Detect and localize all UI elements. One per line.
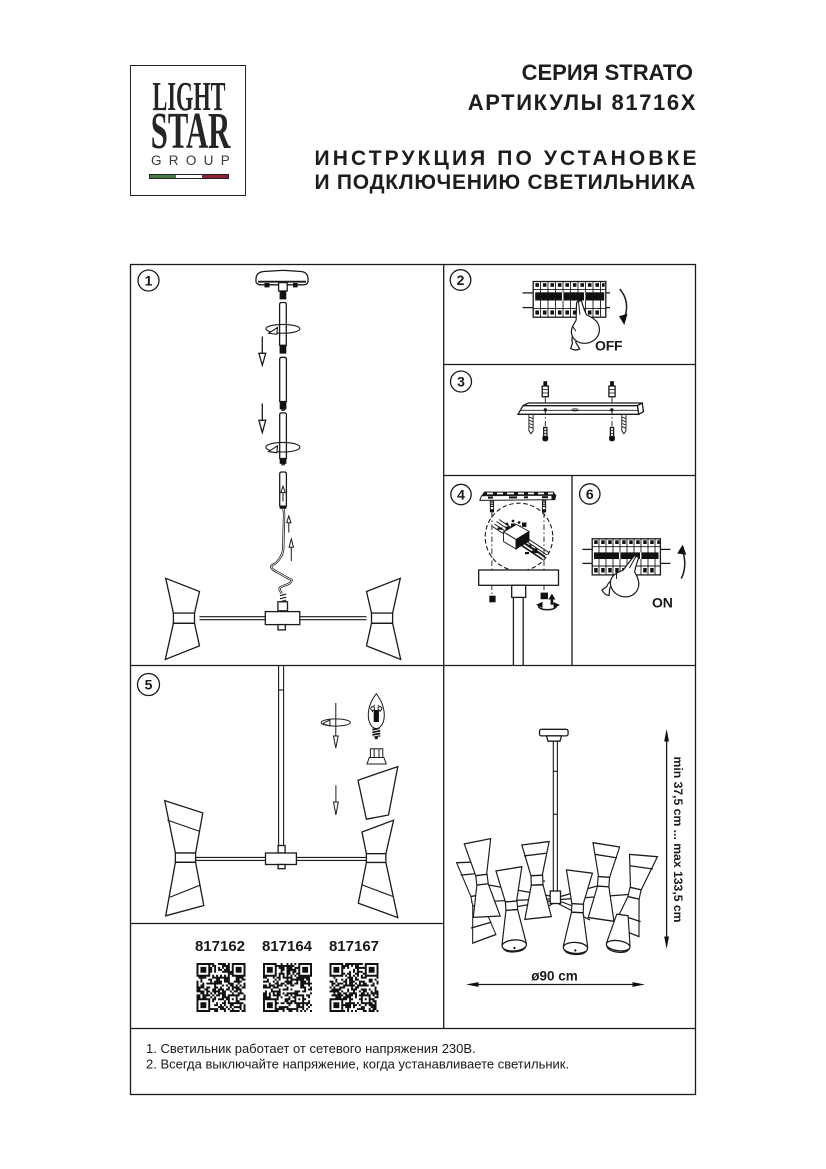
- svg-text:3: 3: [457, 374, 465, 390]
- svg-text:1: 1: [145, 273, 153, 289]
- svg-text:6: 6: [586, 486, 594, 502]
- svg-text:4: 4: [457, 487, 465, 503]
- svg-text:ON: ON: [652, 595, 673, 611]
- svg-text:OFF: OFF: [595, 338, 623, 354]
- svg-text:ø90 cm: ø90 cm: [531, 969, 578, 984]
- svg-text:2. Всегда выключайте напряжени: 2. Всегда выключайте напряжение, когда у…: [146, 1057, 569, 1072]
- svg-text:5: 5: [145, 677, 153, 693]
- svg-text:2: 2: [457, 272, 465, 288]
- svg-text:817162: 817162: [195, 938, 245, 955]
- svg-text:817167: 817167: [329, 938, 379, 955]
- svg-text:min 37,5 cm ... max 133,5 cm: min 37,5 cm ... max 133,5 cm: [671, 757, 685, 923]
- svg-text:1. Светильник работает от сете: 1. Светильник работает от сетевого напря…: [146, 1041, 476, 1056]
- svg-text:817164: 817164: [262, 938, 313, 955]
